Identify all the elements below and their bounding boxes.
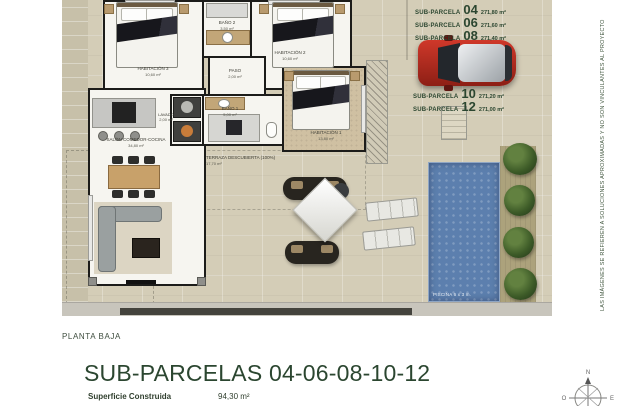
room-area: 17,70 m² bbox=[206, 161, 316, 166]
dryer-door bbox=[181, 125, 193, 137]
nightstand bbox=[259, 4, 269, 14]
headboard bbox=[293, 71, 349, 75]
room-label-bano-1: BAÑO 1 5,00 m² bbox=[205, 106, 255, 117]
parcel-number: 08 bbox=[463, 28, 477, 43]
floor-plan-sheet: PISCINA 6 x 3 m. bbox=[0, 0, 620, 406]
compass-icon: N O E bbox=[560, 366, 618, 406]
cushion bbox=[291, 245, 303, 253]
dining-table bbox=[108, 165, 160, 189]
chair-icon bbox=[144, 190, 155, 198]
room-label-lavado: LAVADO 2,00 m² bbox=[144, 112, 188, 122]
nightstand bbox=[104, 4, 114, 14]
nightstand bbox=[179, 4, 189, 14]
compass-east-label: E bbox=[610, 396, 614, 402]
bush-icon bbox=[504, 268, 537, 300]
room-area: 5,00 m² bbox=[205, 112, 255, 117]
compass-west-label: O bbox=[562, 396, 567, 402]
surface-label: Superficie Construida bbox=[88, 392, 171, 401]
parcel-row-08: SUB-PARCELA 08 271,40 m² bbox=[415, 28, 506, 43]
pool-label: PISCINA 6 x 3 m. bbox=[433, 292, 471, 297]
parcel-row-12: SUB-PARCELA 12 271,00 m² bbox=[413, 99, 504, 114]
room-label-habitacion-1: HABITACIÓN 1 13,80 m² bbox=[295, 130, 357, 141]
sofa-chaise bbox=[98, 206, 116, 272]
room-area: 10,60 m² bbox=[118, 72, 188, 77]
coffee-table bbox=[132, 238, 160, 258]
chair-icon bbox=[112, 190, 123, 198]
pillow bbox=[296, 76, 322, 89]
room-area: 34,80 m² bbox=[100, 143, 172, 148]
parking-wall-line bbox=[406, 0, 408, 60]
pillow bbox=[277, 8, 304, 21]
side-stair-hatch bbox=[366, 60, 388, 164]
nightstand bbox=[284, 71, 294, 81]
parcel-area: 271,00 m² bbox=[479, 107, 504, 113]
bush-icon bbox=[504, 185, 535, 216]
cooktop-icon bbox=[112, 102, 136, 123]
parcel-label: SUB-PARCELA bbox=[415, 36, 460, 42]
chair-icon bbox=[128, 156, 139, 164]
window bbox=[88, 195, 93, 261]
cushion bbox=[291, 181, 303, 189]
disclaimer-note: LAS IMÁGENES SE REFIEREN A SOLUCIONES AP… bbox=[597, 5, 609, 325]
room-label-habitacion-2: HABITACIÓN 2 10,60 m² bbox=[255, 50, 325, 61]
pillar bbox=[197, 277, 206, 286]
room-area: 2,00 m² bbox=[208, 74, 262, 79]
nightstand bbox=[335, 4, 345, 14]
outdoor-sofa bbox=[285, 241, 339, 264]
toilet-icon bbox=[266, 122, 277, 138]
room-area: 13,80 m² bbox=[295, 136, 357, 141]
headboard bbox=[117, 3, 177, 7]
bush-icon bbox=[503, 143, 537, 175]
room-area: 3,50 m² bbox=[204, 26, 250, 31]
page-title: SUB-PARCELAS 04-06-08-10-12 bbox=[84, 360, 430, 387]
chair-icon bbox=[112, 156, 123, 164]
pillar bbox=[88, 277, 97, 286]
chair-icon bbox=[144, 156, 155, 164]
tv-icon bbox=[126, 280, 156, 284]
floor-label: PLANTA BAJA bbox=[62, 332, 121, 341]
street-wall-band bbox=[120, 308, 412, 315]
compass-north-label: N bbox=[586, 370, 590, 376]
parcel-area: 271,40 m² bbox=[481, 36, 506, 42]
swimming-pool bbox=[428, 162, 500, 302]
bed-habitacion-1 bbox=[292, 70, 350, 130]
surface-value: 94,30 m² bbox=[218, 392, 250, 401]
pillow bbox=[121, 8, 148, 21]
room-label-paso: PASO 2,00 m² bbox=[208, 68, 262, 79]
room-label-habitacion-3: HABITACIÓN 3 10,60 m² bbox=[118, 66, 188, 77]
shower-tray bbox=[206, 3, 248, 18]
room-label-terraza: TERRAZA DESCUBIERTA (100%) 17,70 m² bbox=[206, 155, 316, 166]
headboard bbox=[273, 3, 333, 7]
room-label-bano-2: BAÑO 2 3,50 m² bbox=[204, 20, 250, 31]
car-rear-window bbox=[505, 45, 512, 81]
cushion bbox=[321, 245, 333, 253]
sink-icon bbox=[222, 32, 233, 43]
chair-icon bbox=[128, 190, 139, 198]
bush-icon bbox=[503, 227, 534, 258]
room-area: 2,00 m² bbox=[144, 117, 188, 122]
car-roof bbox=[458, 44, 506, 82]
car-windshield bbox=[438, 43, 460, 83]
parcel-number: 12 bbox=[461, 99, 475, 114]
window bbox=[361, 85, 366, 133]
shower-mat bbox=[226, 120, 242, 135]
room-label-salon: SALÓN COMEDOR-COCINA 34,80 m² bbox=[100, 137, 172, 148]
room-name: SALÓN COMEDOR-COCINA bbox=[100, 137, 172, 143]
nightstand bbox=[350, 71, 360, 81]
parcel-label: SUB-PARCELA bbox=[413, 107, 458, 113]
room-area: 10,60 m² bbox=[255, 56, 325, 61]
bed-habitacion-3 bbox=[116, 2, 178, 68]
